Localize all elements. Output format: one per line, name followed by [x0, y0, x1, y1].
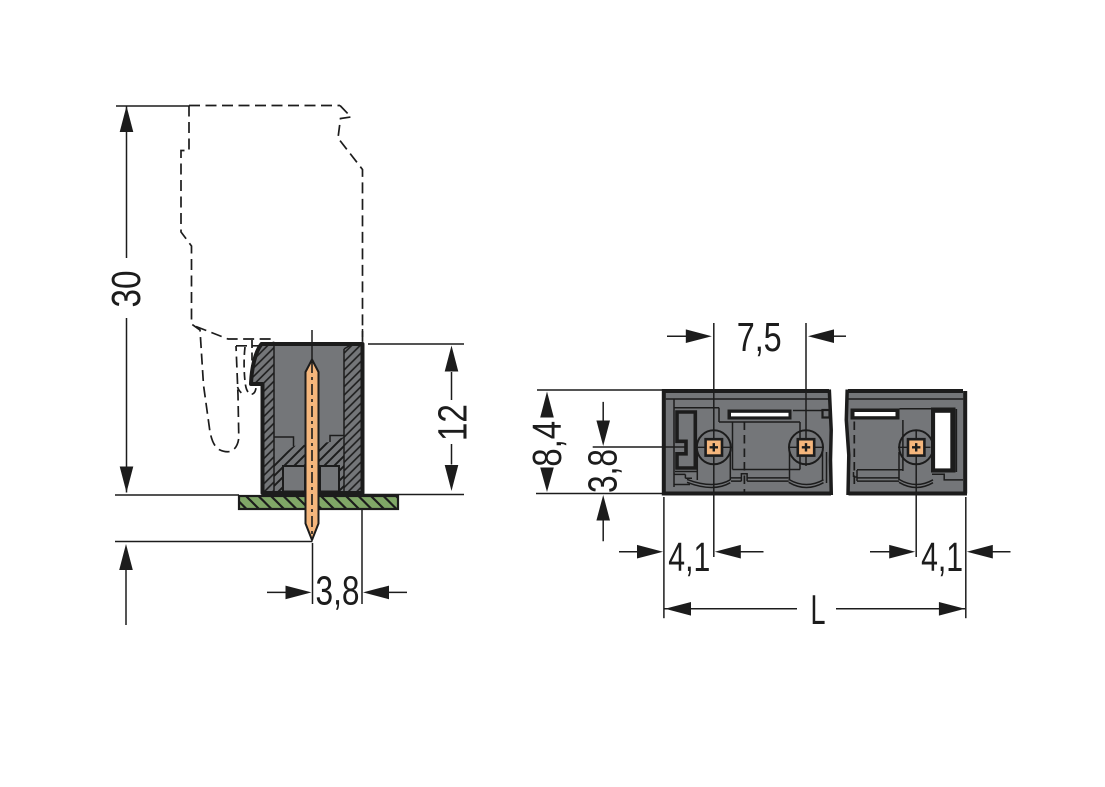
- svg-text:8,4: 8,4: [524, 421, 570, 467]
- svg-text:3,8: 3,8: [580, 449, 626, 493]
- svg-text:7,5: 7,5: [737, 314, 782, 360]
- svg-text:12: 12: [429, 404, 475, 441]
- svg-text:L: L: [811, 586, 826, 633]
- svg-text:4,1: 4,1: [668, 534, 710, 580]
- svg-text:30: 30: [103, 271, 149, 308]
- svg-text:3,8: 3,8: [316, 568, 360, 614]
- svg-text:4,1: 4,1: [921, 534, 963, 580]
